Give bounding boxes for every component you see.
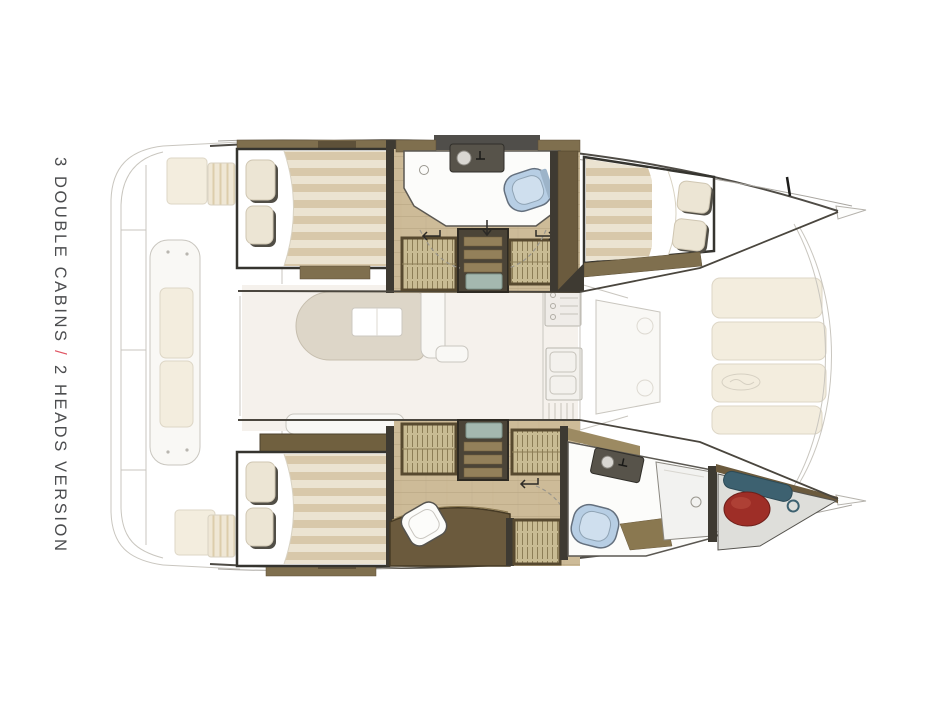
fender bbox=[724, 492, 770, 526]
bed-duvet bbox=[281, 151, 386, 266]
step-landing-mat bbox=[466, 274, 502, 289]
bulkhead bbox=[560, 426, 568, 560]
deck-trim bbox=[538, 140, 580, 152]
foredeck-cushion bbox=[712, 406, 822, 434]
bulkhead bbox=[708, 466, 717, 542]
pillow bbox=[246, 508, 273, 546]
step-tread bbox=[464, 263, 502, 272]
pillow bbox=[672, 218, 707, 252]
bed-duvet bbox=[281, 454, 386, 564]
pillow bbox=[246, 206, 273, 244]
foredeck-cushion bbox=[712, 278, 822, 318]
cockpit-seat-cushion-striped bbox=[208, 163, 235, 205]
cockpit-seat-cushion bbox=[167, 158, 207, 204]
sink-basin bbox=[457, 151, 471, 165]
deck-fitting bbox=[185, 252, 188, 255]
step-tread bbox=[464, 442, 502, 451]
bow-cleat-mark bbox=[787, 177, 790, 196]
galley-sink bbox=[546, 348, 582, 400]
step-landing-mat bbox=[466, 423, 502, 438]
hanging-locker bbox=[558, 151, 578, 292]
hull-bottom bbox=[237, 420, 838, 576]
bow-tip bbox=[836, 495, 866, 505]
deck-fitting bbox=[166, 250, 169, 253]
step-tread bbox=[464, 468, 502, 477]
pillow bbox=[246, 160, 275, 200]
bed-duvet bbox=[586, 159, 652, 261]
cabin-aft-bottom bbox=[237, 434, 390, 566]
bulkhead bbox=[550, 151, 558, 292]
bed-side-shelf bbox=[300, 266, 370, 279]
cockpit-seat-cushion-striped bbox=[208, 515, 235, 557]
saloon-ghost bbox=[240, 278, 578, 434]
wardrobe bbox=[514, 520, 560, 564]
step-tread bbox=[464, 237, 502, 246]
foredeck-cushion bbox=[712, 322, 826, 360]
deck-trim bbox=[396, 140, 436, 152]
deck-fitting bbox=[166, 450, 169, 453]
fender-highlight bbox=[731, 497, 751, 509]
hull-top bbox=[237, 135, 838, 293]
cabin-aft-top bbox=[237, 149, 389, 279]
deck-fitting bbox=[185, 448, 188, 451]
boat-layout-page: 3 DOUBLE CABINS / 2 HEADS VERSION bbox=[0, 0, 947, 710]
cockpit-table-cushion bbox=[160, 288, 193, 358]
saloon-seat bbox=[436, 346, 468, 362]
head-bottom bbox=[560, 426, 712, 560]
cockpit-table-cushion bbox=[160, 361, 193, 427]
pillow bbox=[676, 180, 711, 214]
step-tread bbox=[464, 455, 502, 464]
side-shelf bbox=[237, 140, 389, 149]
forward-cockpit-bench bbox=[596, 300, 660, 414]
catamaran-floor-plan bbox=[0, 0, 947, 710]
bow-tip bbox=[836, 206, 866, 219]
step-tread bbox=[464, 250, 502, 259]
foredeck-cushion bbox=[712, 364, 826, 402]
headboard bbox=[260, 434, 390, 452]
pillow bbox=[246, 462, 275, 502]
